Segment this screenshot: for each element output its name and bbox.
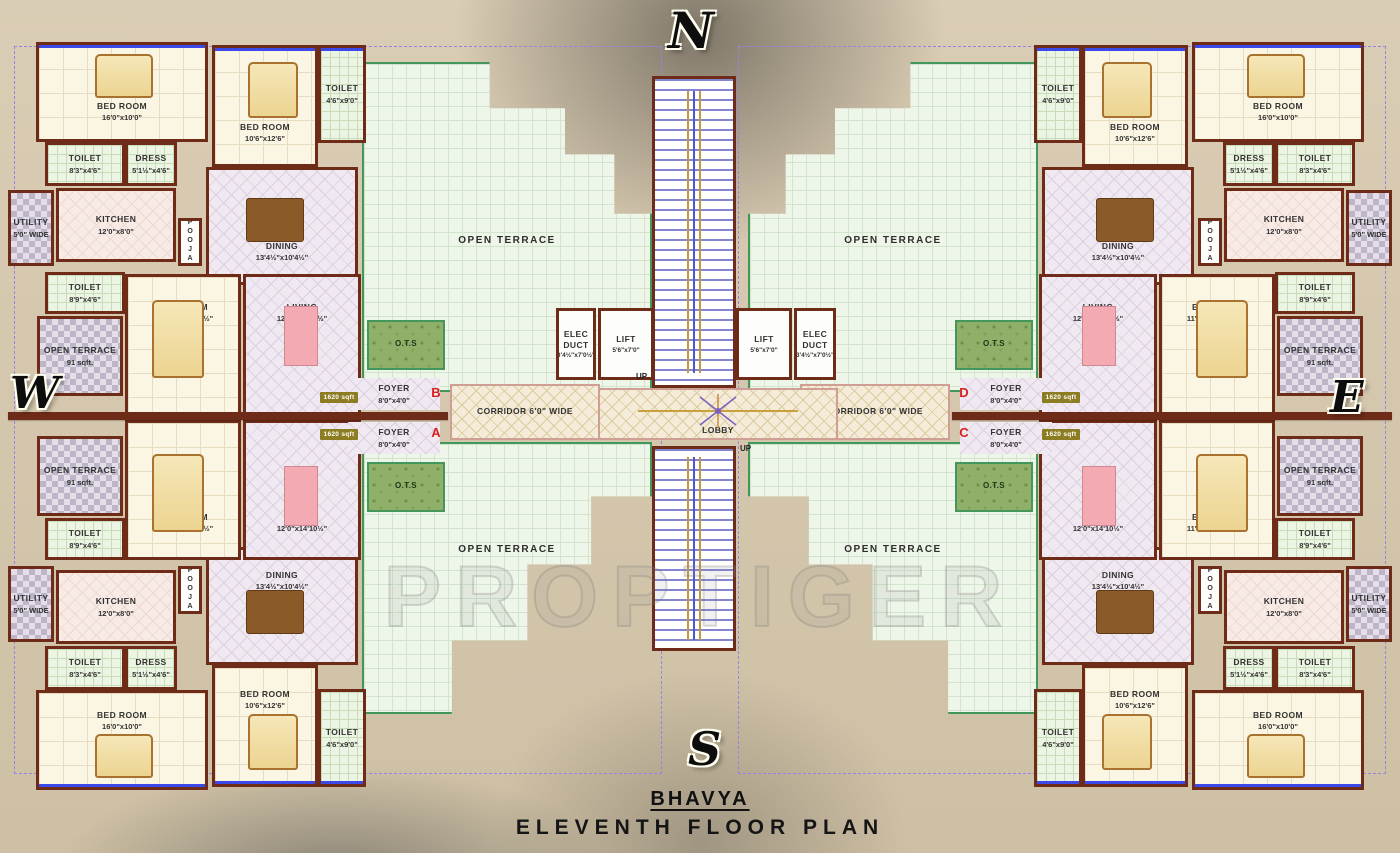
ots-unit-d: O.T.S <box>955 320 1033 370</box>
utility-unit-d-name: UTILITY <box>1352 217 1387 228</box>
kitchen-unit-a-label: KITCHEN12'0"x8'0" <box>96 596 137 617</box>
open-terrace-91-unit-a-dims: 91 sqft. <box>67 478 93 487</box>
unit-letter-a-text: A <box>431 425 440 440</box>
toilet-83x46-unit-d: TOILET8'3"x4'6" <box>1275 142 1355 186</box>
dining-table-icon-c <box>1096 590 1154 634</box>
lift-west-label: LIFT5'6"x7'0" <box>612 334 639 353</box>
dress-unit-a: DRESS5'1½"x4'6" <box>125 646 177 690</box>
toilet-83x46-unit-c-name: TOILET <box>1299 657 1331 668</box>
toilet-89x46-unit-a-dims: 8'9"x4'6" <box>69 541 101 550</box>
area-badge-unit-d-text: 1620 sqft <box>1046 394 1077 401</box>
compass-east: E <box>1330 376 1364 420</box>
lift-west: LIFT5'6"x7'0" <box>598 308 654 380</box>
ots-unit-b-name: O.T.S <box>395 339 417 349</box>
compass-north: N <box>668 6 714 56</box>
plan-footer: BHAVYA ELEVENTH FLOOR PLAN <box>0 788 1400 840</box>
foyer-unit-c: FOYER8'0"x4'0" <box>960 422 1052 454</box>
ots-unit-d-label: O.T.S <box>983 339 1005 350</box>
stairs-up-text-north: UP <box>636 372 647 381</box>
bedroom-16x10-unit-b-name: BED ROOM <box>97 101 147 112</box>
elec-duct-east-dims: 3'4½"x7'0½" <box>796 352 834 359</box>
toilet-46x90-unit-a-label: TOILET4'6"x9'0" <box>326 727 358 748</box>
kitchen-unit-c-dims: 12'0"x8'0" <box>1266 609 1302 618</box>
pooja-unit-d-label: POOJA <box>1205 219 1214 265</box>
kitchen-unit-d-name: KITCHEN <box>1264 214 1305 225</box>
toilet-89x46-unit-b-label: TOILET8'9"x4'6" <box>69 282 101 303</box>
pooja-unit-a: POOJA <box>178 566 202 614</box>
bed-icon-b3 <box>152 300 204 378</box>
dining-unit-c-name: DINING <box>1102 570 1134 581</box>
rug-icon-c <box>1082 466 1116 526</box>
foyer-unit-b-name: FOYER <box>378 383 409 394</box>
area-badge-unit-c: 1620 sqft <box>1042 429 1080 440</box>
toilet-46x90-unit-c-dims: 4'6"x9'0" <box>1042 740 1074 749</box>
ots-unit-d-name: O.T.S <box>983 339 1005 349</box>
pooja-unit-b-name: POOJA <box>185 219 194 264</box>
open-terrace-91-unit-c-dims: 91 sqft. <box>1307 478 1333 487</box>
toilet-89x46-unit-a-label: TOILET8'9"x4'6" <box>69 528 101 549</box>
corridor-east-name: CORRIDOR 6'0" WIDE <box>827 406 923 417</box>
ots-unit-a-label: O.T.S <box>395 481 417 492</box>
staircase-north <box>652 76 736 388</box>
unit-letter-b: B <box>428 384 444 400</box>
bedroom-16x10-unit-d-dims: 16'0"x10'0" <box>1258 113 1298 122</box>
foyer-unit-b: FOYER8'0"x4'0" <box>348 378 440 410</box>
bedroom-106x126-unit-b-name: BED ROOM <box>240 122 290 133</box>
stairs-up-label-north: UP <box>636 372 647 381</box>
lift-east: LIFT5'6"x7'0" <box>736 308 792 380</box>
dining-unit-d-label: DINING13'4½"x10'4½" <box>1045 241 1191 262</box>
bed-icon-a1 <box>95 734 153 778</box>
unit-letter-d-text: D <box>959 385 968 400</box>
bed-icon-a3 <box>152 454 204 532</box>
dress-unit-c-label: DRESS5'1½"x4'6" <box>1230 657 1268 678</box>
foyer-unit-c-name: FOYER <box>990 427 1021 438</box>
elec-duct-east-label: ELEC DUCT3'4½"x7'0½" <box>796 329 834 359</box>
bedroom-16x10-unit-b-dims: 16'0"x10'0" <box>102 113 142 122</box>
unit-letter-b-text: B <box>431 385 440 400</box>
kitchen-unit-a-name: KITCHEN <box>96 596 137 607</box>
ots-unit-a-name: O.T.S <box>395 481 417 491</box>
unit-letter-a: A <box>428 424 444 440</box>
area-badge-unit-b: 1620 sqft <box>320 392 358 403</box>
bedroom-106x126-unit-b-dims: 10'6"x12'6" <box>245 134 285 143</box>
pooja-unit-b-label: POOJA <box>185 219 194 265</box>
bedroom-16x10-unit-d-label: BED ROOM16'0"x10'0" <box>1195 101 1361 122</box>
bed-icon-c1 <box>1247 734 1305 778</box>
bedroom-106x126-unit-a-dims: 10'6"x12'6" <box>245 701 285 710</box>
utility-unit-a-dims: 5'0" WIDE <box>13 606 48 615</box>
pooja-unit-d: POOJA <box>1198 218 1222 266</box>
bedroom-16x10-unit-a-dims: 16'0"x10'0" <box>102 722 142 731</box>
dress-unit-a-dims: 5'1½"x4'6" <box>132 670 170 679</box>
toilet-46x90-unit-b-label: TOILET4'6"x9'0" <box>326 83 358 104</box>
dress-unit-c: DRESS5'1½"x4'6" <box>1223 646 1275 690</box>
kitchen-unit-b-dims: 12'0"x8'0" <box>98 227 134 236</box>
corridor-east-label: CORRIDOR 6'0" WIDE <box>827 406 923 418</box>
utility-unit-c-dims: 5'0" WIDE <box>1351 606 1386 615</box>
dress-unit-d-label: DRESS5'1½"x4'6" <box>1230 153 1268 174</box>
bed-icon-c3 <box>1196 454 1248 532</box>
toilet-46x90-unit-a-dims: 4'6"x9'0" <box>326 740 358 749</box>
bedroom-106x126-unit-a-name: BED ROOM <box>240 689 290 700</box>
elec-duct-west-dims: 3'4½"x7'0½" <box>557 352 595 359</box>
floor-plan-page: UP UP LOBBY N S W E PROPTIGER BHAVYA ELE… <box>0 0 1400 853</box>
foyer-unit-a: FOYER8'0"x4'0" <box>348 422 440 454</box>
toilet-46x90-unit-d: TOILET4'6"x9'0" <box>1034 45 1082 143</box>
toilet-89x46-unit-b-dims: 8'9"x4'6" <box>69 295 101 304</box>
utility-unit-b-name: UTILITY <box>14 217 49 228</box>
dining-unit-a-name: DINING <box>266 570 298 581</box>
open-terrace-91-unit-c: OPEN TERRACE91 sqft. <box>1277 436 1363 516</box>
open-terrace-91-unit-c-name: OPEN TERRACE <box>1284 465 1356 476</box>
toilet-89x46-unit-d: TOILET8'9"x4'6" <box>1275 272 1355 314</box>
bed-icon-a2 <box>248 714 298 770</box>
utility-unit-a-label: UTILITY5'0" WIDE <box>13 593 48 614</box>
kitchen-unit-b-name: KITCHEN <box>96 214 137 225</box>
dining-table-icon-d <box>1096 198 1154 242</box>
toilet-89x46-unit-c-dims: 8'9"x4'6" <box>1299 541 1331 550</box>
elec-duct-west-name: ELEC DUCT <box>557 329 595 351</box>
open-terrace-91-unit-b-label: OPEN TERRACE91 sqft. <box>44 345 116 366</box>
toilet-83x46-unit-a-label: TOILET8'3"x4'6" <box>69 657 101 678</box>
stairs-up-text-south: UP <box>740 444 751 453</box>
elec-duct-east-name: ELEC DUCT <box>796 329 834 351</box>
bed-icon-b2 <box>248 62 298 118</box>
foyer-unit-a-dims: 8'0"x4'0" <box>378 440 410 449</box>
foyer-unit-d-label: FOYER8'0"x4'0" <box>990 383 1022 404</box>
rug-icon-d <box>1082 306 1116 366</box>
center-spine-wall-right <box>952 412 1392 420</box>
open-terrace-91-unit-c-label: OPEN TERRACE91 sqft. <box>1284 465 1356 486</box>
bedroom-106x126-unit-d-name: BED ROOM <box>1110 122 1160 133</box>
toilet-89x46-unit-d-name: TOILET <box>1299 282 1331 293</box>
foyer-unit-c-label: FOYER8'0"x4'0" <box>990 427 1022 448</box>
toilet-83x46-unit-a: TOILET8'3"x4'6" <box>45 646 125 690</box>
toilet-46x90-unit-b-name: TOILET <box>326 83 358 94</box>
bedroom-16x10-unit-a-label: BED ROOM16'0"x10'0" <box>39 710 205 731</box>
compass-west-letter: W <box>10 368 59 419</box>
toilet-89x46-unit-b-name: TOILET <box>69 282 101 293</box>
corridor-west: CORRIDOR 6'0" WIDE <box>450 384 600 440</box>
lift-east-label: LIFT5'6"x7'0" <box>750 334 777 353</box>
pooja-unit-b: POOJA <box>178 218 202 266</box>
staircase-south <box>652 446 736 651</box>
corridor-west-label: CORRIDOR 6'0" WIDE <box>477 406 573 418</box>
stairs-up-label-south: UP <box>740 444 751 453</box>
open-terrace-north-west-label: OPEN TERRACE <box>364 234 650 248</box>
toilet-46x90-unit-a: TOILET4'6"x9'0" <box>318 689 366 787</box>
foyer-unit-b-label: FOYER8'0"x4'0" <box>378 383 410 404</box>
pooja-unit-c-name: POOJA <box>1205 567 1214 612</box>
elec-duct-west-label: ELEC DUCT3'4½"x7'0½" <box>557 329 595 359</box>
pooja-unit-a-label: POOJA <box>185 567 194 613</box>
building-title: BHAVYA <box>650 788 749 811</box>
kitchen-unit-a: KITCHEN12'0"x8'0" <box>56 570 176 644</box>
toilet-83x46-unit-b-label: TOILET8'3"x4'6" <box>69 153 101 174</box>
toilet-46x90-unit-c: TOILET4'6"x9'0" <box>1034 689 1082 787</box>
open-terrace-south-east-name: OPEN TERRACE <box>844 543 941 556</box>
open-terrace-north-east-name: OPEN TERRACE <box>844 234 941 247</box>
utility-unit-c: UTILITY5'0" WIDE <box>1346 566 1392 642</box>
center-spine-wall-left <box>8 412 448 420</box>
toilet-46x90-unit-d-dims: 4'6"x9'0" <box>1042 96 1074 105</box>
kitchen-unit-d: KITCHEN12'0"x8'0" <box>1224 188 1344 262</box>
toilet-89x46-unit-c-label: TOILET8'9"x4'6" <box>1299 528 1331 549</box>
open-terrace-91-unit-d-name: OPEN TERRACE <box>1284 345 1356 356</box>
lift-west-dims: 5'6"x7'0" <box>612 347 639 354</box>
toilet-83x46-unit-b-name: TOILET <box>69 153 101 164</box>
bedroom-106x126-unit-d-dims: 10'6"x12'6" <box>1115 134 1155 143</box>
toilet-83x46-unit-d-name: TOILET <box>1299 153 1331 164</box>
utility-unit-b-dims: 5'0" WIDE <box>13 230 48 239</box>
toilet-46x90-unit-a-name: TOILET <box>326 727 358 738</box>
utility-unit-d: UTILITY5'0" WIDE <box>1346 190 1392 266</box>
open-terrace-91-unit-d-label: OPEN TERRACE91 sqft. <box>1284 345 1356 366</box>
dining-table-icon-a <box>246 590 304 634</box>
area-badge-unit-d: 1620 sqft <box>1042 392 1080 403</box>
bed-icon-c2 <box>1102 714 1152 770</box>
utility-unit-d-label: UTILITY5'0" WIDE <box>1351 217 1386 238</box>
dress-unit-b-label: DRESS5'1½"x4'6" <box>132 153 170 174</box>
toilet-46x90-unit-c-name: TOILET <box>1042 727 1074 738</box>
toilet-89x46-unit-a: TOILET8'9"x4'6" <box>45 518 125 560</box>
toilet-83x46-unit-b-dims: 8'3"x4'6" <box>69 166 101 175</box>
dining-unit-d-name: DINING <box>1102 241 1134 252</box>
utility-unit-b: UTILITY5'0" WIDE <box>8 190 54 266</box>
pooja-unit-c: POOJA <box>1198 566 1222 614</box>
open-terrace-91-unit-b-name: OPEN TERRACE <box>44 345 116 356</box>
open-terrace-91-unit-d-dims: 91 sqft. <box>1307 358 1333 367</box>
kitchen-unit-b: KITCHEN12'0"x8'0" <box>56 188 176 262</box>
bedroom-16x10-unit-c-dims: 16'0"x10'0" <box>1258 722 1298 731</box>
utility-unit-d-dims: 5'0" WIDE <box>1351 230 1386 239</box>
utility-unit-a: UTILITY5'0" WIDE <box>8 566 54 642</box>
kitchen-unit-c-label: KITCHEN12'0"x8'0" <box>1264 596 1305 617</box>
bedroom-106x126-unit-d-label: BED ROOM10'6"x12'6" <box>1085 122 1185 143</box>
toilet-46x90-unit-c-label: TOILET4'6"x9'0" <box>1042 727 1074 748</box>
kitchen-unit-d-dims: 12'0"x8'0" <box>1266 227 1302 236</box>
toilet-89x46-unit-c-name: TOILET <box>1299 528 1331 539</box>
foyer-unit-a-label: FOYER8'0"x4'0" <box>378 427 410 448</box>
dining-unit-d-dims: 13'4½"x10'4½" <box>1092 253 1144 262</box>
dining-unit-c-label: DINING13'4½"x10'4½" <box>1045 570 1191 591</box>
toilet-83x46-unit-b: TOILET8'3"x4'6" <box>45 142 125 186</box>
utility-unit-c-label: UTILITY5'0" WIDE <box>1351 593 1386 614</box>
foyer-unit-c-dims: 8'0"x4'0" <box>990 440 1022 449</box>
bed-icon-d2 <box>1102 62 1152 118</box>
ots-unit-b-label: O.T.S <box>395 339 417 350</box>
kitchen-unit-d-label: KITCHEN12'0"x8'0" <box>1264 214 1305 235</box>
bed-icon-d1 <box>1247 54 1305 98</box>
lift-east-dims: 5'6"x7'0" <box>750 347 777 354</box>
area-badge-unit-a: 1620 sqft <box>320 429 358 440</box>
kitchen-unit-a-dims: 12'0"x8'0" <box>98 609 134 618</box>
unit-letter-c: C <box>956 424 972 440</box>
dress-unit-a-name: DRESS <box>135 657 166 668</box>
compass-west: W <box>10 372 59 416</box>
toilet-46x90-unit-d-name: TOILET <box>1042 83 1074 94</box>
bedroom-106x126-unit-c-name: BED ROOM <box>1110 689 1160 700</box>
ots-unit-a: O.T.S <box>367 462 445 512</box>
dress-unit-d-dims: 5'1½"x4'6" <box>1230 166 1268 175</box>
open-terrace-91-unit-a-name: OPEN TERRACE <box>44 465 116 476</box>
ots-unit-c: O.T.S <box>955 462 1033 512</box>
bedroom-106x126-unit-b-label: BED ROOM10'6"x12'6" <box>215 122 315 143</box>
bedroom-16x10-unit-a-name: BED ROOM <box>97 710 147 721</box>
kitchen-unit-c: KITCHEN12'0"x8'0" <box>1224 570 1344 644</box>
bedroom-16x10-unit-b-label: BED ROOM16'0"x10'0" <box>39 101 205 122</box>
bed-icon-b1 <box>95 54 153 98</box>
ots-unit-b: O.T.S <box>367 320 445 370</box>
open-terrace-north-west-name: OPEN TERRACE <box>458 234 555 247</box>
dining-unit-b-label: DINING13'4½"x10'4½" <box>209 241 355 262</box>
dining-unit-a-label: DINING13'4½"x10'4½" <box>209 570 355 591</box>
bedroom-106x126-unit-a-label: BED ROOM10'6"x12'6" <box>215 689 315 710</box>
pooja-unit-d-name: POOJA <box>1205 219 1214 264</box>
toilet-89x46-unit-d-dims: 8'9"x4'6" <box>1299 295 1331 304</box>
ots-unit-c-name: O.T.S <box>983 481 1005 491</box>
toilet-89x46-unit-d-label: TOILET8'9"x4'6" <box>1299 282 1331 303</box>
toilet-89x46-unit-a-name: TOILET <box>69 528 101 539</box>
dining-unit-b-name: DINING <box>266 241 298 252</box>
toilet-83x46-unit-d-dims: 8'3"x4'6" <box>1299 166 1331 175</box>
open-terrace-south-west-name: OPEN TERRACE <box>458 543 555 556</box>
unit-letter-c-text: C <box>959 425 968 440</box>
open-terrace-91-unit-a: OPEN TERRACE91 sqft. <box>37 436 123 516</box>
pooja-unit-a-name: POOJA <box>185 567 194 612</box>
pooja-unit-c-label: POOJA <box>1205 567 1214 613</box>
bed-icon-d3 <box>1196 300 1248 378</box>
foyer-unit-d: FOYER8'0"x4'0" <box>960 378 1052 410</box>
open-terrace-north-east-label: OPEN TERRACE <box>750 234 1036 248</box>
elec-duct-west: ELEC DUCT3'4½"x7'0½" <box>556 308 596 380</box>
dress-unit-b-dims: 5'1½"x4'6" <box>132 166 170 175</box>
rug-icon-a <box>284 466 318 526</box>
dress-unit-c-name: DRESS <box>1233 657 1264 668</box>
toilet-46x90-unit-b-dims: 4'6"x9'0" <box>326 96 358 105</box>
kitchen-unit-b-label: KITCHEN12'0"x8'0" <box>96 214 137 235</box>
toilet-83x46-unit-c-dims: 8'3"x4'6" <box>1299 670 1331 679</box>
foyer-unit-d-dims: 8'0"x4'0" <box>990 396 1022 405</box>
toilet-89x46-unit-b: TOILET8'9"x4'6" <box>45 272 125 314</box>
dress-unit-d-name: DRESS <box>1233 153 1264 164</box>
foyer-unit-a-name: FOYER <box>378 427 409 438</box>
utility-unit-c-name: UTILITY <box>1352 593 1387 604</box>
toilet-83x46-unit-c: TOILET8'3"x4'6" <box>1275 646 1355 690</box>
open-terrace-91-unit-b-dims: 91 sqft. <box>67 358 93 367</box>
area-badge-unit-c-text: 1620 sqft <box>1046 431 1077 438</box>
dress-unit-a-label: DRESS5'1½"x4'6" <box>132 657 170 678</box>
toilet-46x90-unit-d-label: TOILET4'6"x9'0" <box>1042 83 1074 104</box>
elec-duct-east: ELEC DUCT3'4½"x7'0½" <box>794 308 836 380</box>
bedroom-16x10-unit-c-name: BED ROOM <box>1253 710 1303 721</box>
toilet-89x46-unit-c: TOILET8'9"x4'6" <box>1275 518 1355 560</box>
lift-west-name: LIFT <box>616 334 636 345</box>
foyer-unit-d-name: FOYER <box>990 383 1021 394</box>
open-terrace-91-unit-a-label: OPEN TERRACE91 sqft. <box>44 465 116 486</box>
compass-east-letter: E <box>1330 372 1364 423</box>
compass-north-letter: N <box>668 1 714 60</box>
compass-south: S <box>688 726 721 772</box>
bedroom-16x10-unit-d-name: BED ROOM <box>1253 101 1303 112</box>
kitchen-unit-c-name: KITCHEN <box>1264 596 1305 607</box>
bedroom-106x126-unit-c-dims: 10'6"x12'6" <box>1115 701 1155 710</box>
plan-title: ELEVENTH FLOOR PLAN <box>0 816 1400 840</box>
lobby-star-icon <box>638 394 798 428</box>
dining-unit-b-dims: 13'4½"x10'4½" <box>256 253 308 262</box>
compass-south-letter: S <box>688 722 721 776</box>
toilet-83x46-unit-a-dims: 8'3"x4'6" <box>69 670 101 679</box>
toilet-83x46-unit-c-label: TOILET8'3"x4'6" <box>1299 657 1331 678</box>
dress-unit-b-name: DRESS <box>135 153 166 164</box>
utility-unit-b-label: UTILITY5'0" WIDE <box>13 217 48 238</box>
toilet-46x90-unit-b: TOILET4'6"x9'0" <box>318 45 366 143</box>
rug-icon-b <box>284 306 318 366</box>
dress-unit-b: DRESS5'1½"x4'6" <box>125 142 177 186</box>
dress-unit-d: DRESS5'1½"x4'6" <box>1223 142 1275 186</box>
toilet-83x46-unit-d-label: TOILET8'3"x4'6" <box>1299 153 1331 174</box>
bedroom-16x10-unit-c-label: BED ROOM16'0"x10'0" <box>1195 710 1361 731</box>
ots-unit-c-label: O.T.S <box>983 481 1005 492</box>
dress-unit-c-dims: 5'1½"x4'6" <box>1230 670 1268 679</box>
area-badge-unit-a-text: 1620 sqft <box>324 431 355 438</box>
corridor-west-name: CORRIDOR 6'0" WIDE <box>477 406 573 417</box>
toilet-83x46-unit-a-name: TOILET <box>69 657 101 668</box>
area-badge-unit-b-text: 1620 sqft <box>324 394 355 401</box>
bedroom-106x126-unit-c-label: BED ROOM10'6"x12'6" <box>1085 689 1185 710</box>
unit-letter-d: D <box>956 384 972 400</box>
foyer-unit-b-dims: 8'0"x4'0" <box>378 396 410 405</box>
lift-east-name: LIFT <box>754 334 774 345</box>
lobby: LOBBY <box>598 388 838 440</box>
utility-unit-a-name: UTILITY <box>14 593 49 604</box>
dining-table-icon-b <box>246 198 304 242</box>
